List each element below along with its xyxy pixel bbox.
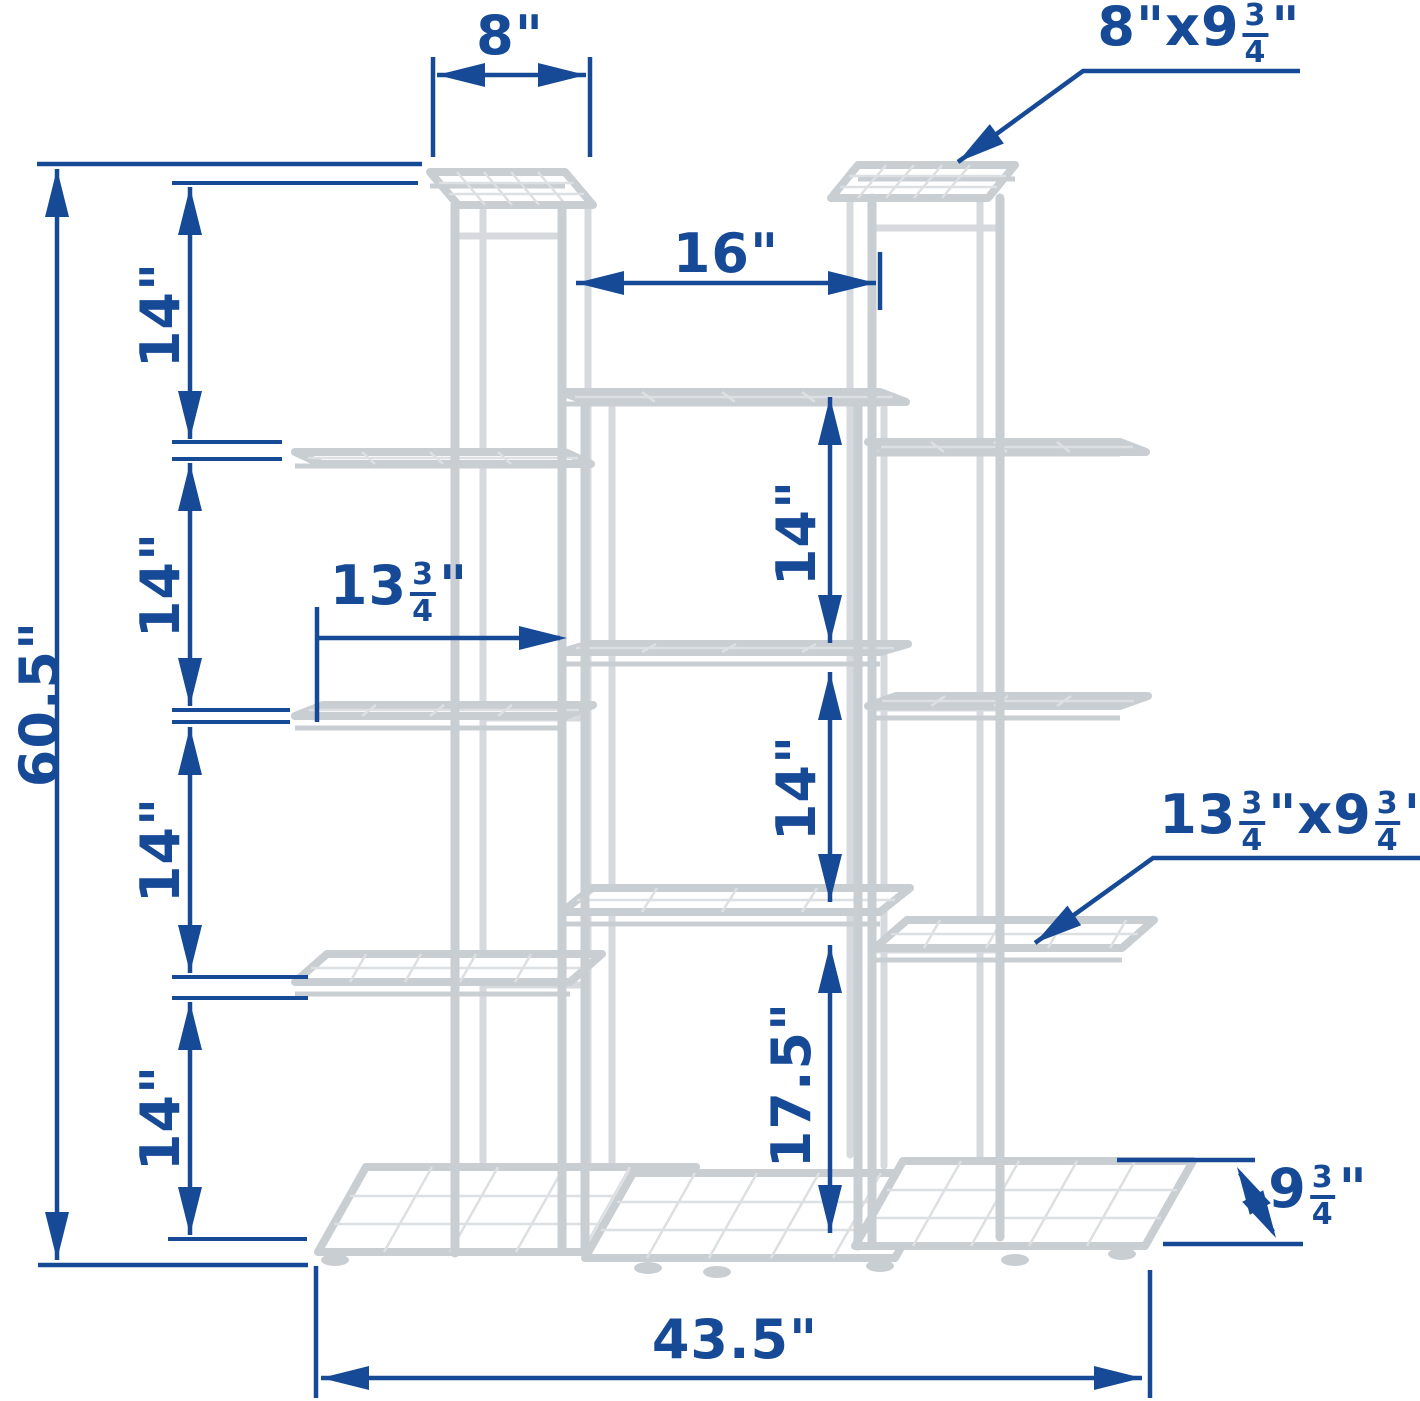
tower-rails: [455, 228, 1000, 985]
label-center-spacing-top: 14": [770, 480, 824, 586]
label-bottom-spacing: 17.5": [765, 1002, 819, 1168]
label-center-spacing-mid: 14": [770, 735, 824, 841]
label-total-height: 60.5": [13, 621, 67, 787]
label-left-spacing-1: 14": [134, 262, 188, 368]
dimension-diagram: 8" 8"x934" 16" 14" 1334" 14" 17.5" 1334"…: [0, 0, 1420, 1401]
label-shelf-depth: 934": [1268, 1162, 1368, 1230]
label-left-spacing-3: 14": [134, 797, 188, 903]
label-side-shelf-size: 1334"x934": [1159, 788, 1420, 856]
label-top-shelf-size: 8"x934": [1097, 0, 1300, 68]
base-shelf-right: [855, 1161, 1193, 1246]
label-center-width: 16": [673, 227, 779, 281]
label-left-spacing-2: 14": [134, 532, 188, 638]
label-top-width: 8": [476, 9, 544, 63]
plant-stand-drawing: [295, 165, 1193, 1278]
diagram-canvas: [0, 0, 1420, 1401]
label-mid-shelf-width: 1334": [330, 559, 468, 627]
label-left-spacing-4: 14": [134, 1065, 188, 1171]
leader-top-shelf: [958, 71, 1300, 162]
label-total-width: 43.5": [652, 1313, 818, 1367]
